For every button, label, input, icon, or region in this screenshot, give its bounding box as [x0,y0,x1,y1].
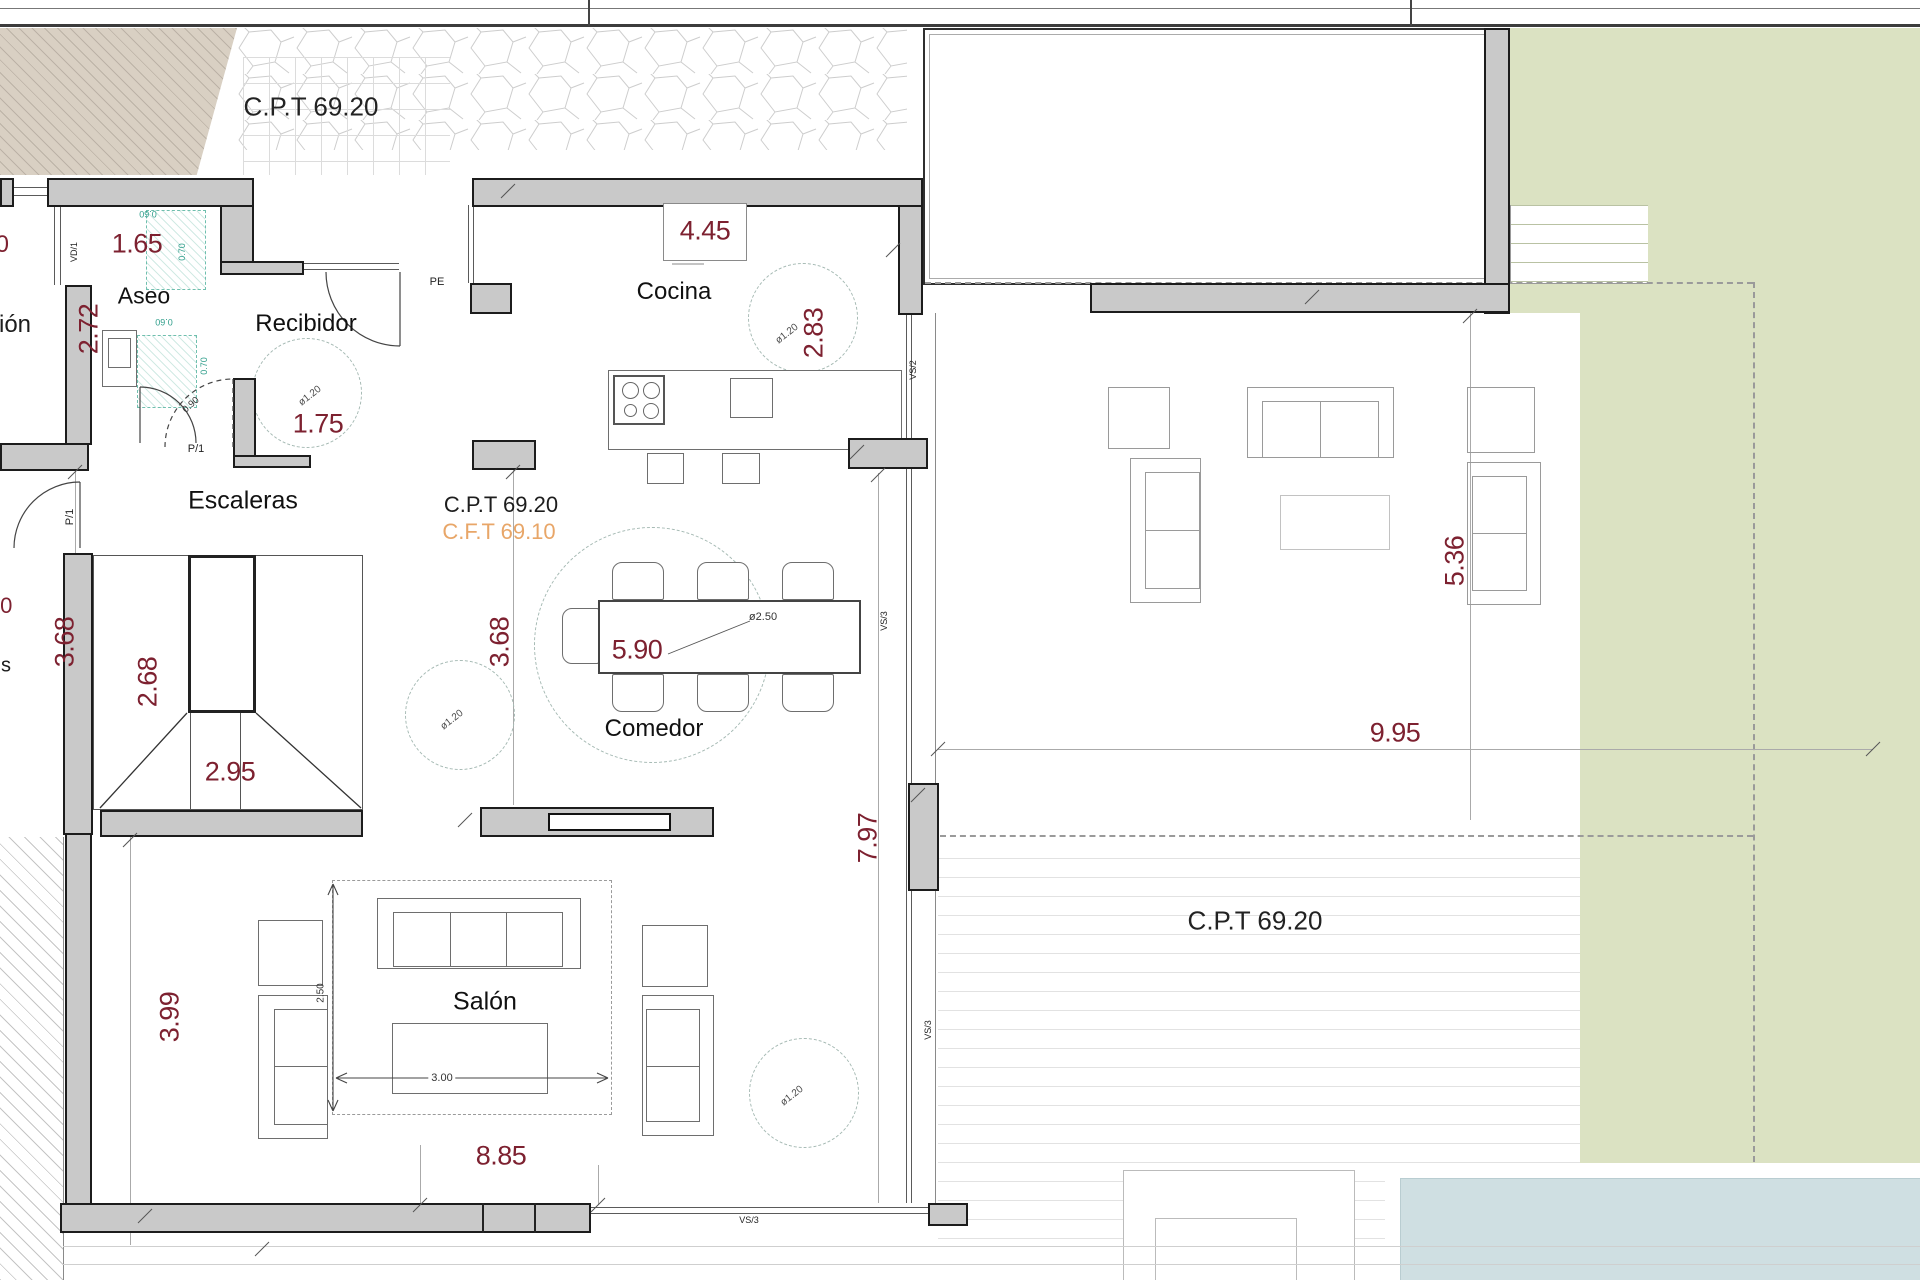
cocina-partition-line-2 [473,205,474,283]
dim-9-95: 9.95 [1370,718,1421,749]
outdoor-sofa-left-divider [1145,530,1200,531]
armchair-right [642,995,714,1136]
dim-3-68-left: 3.68 [50,617,81,668]
armchair-left-divider [274,1066,328,1067]
pe-threshold-line-2 [303,269,399,270]
dining-chair-bottom-2 [697,674,749,712]
hatch-bottom-left [0,837,64,1280]
dim-line-885-right [598,1165,599,1205]
dim-3-99: 3.99 [155,992,186,1043]
dim-5-90: 5.90 [612,635,663,666]
coffee-table [392,1023,548,1094]
sofa-cushion-line-1 [450,912,451,967]
burner-2 [643,382,660,399]
stool-2 [722,453,760,484]
burner-4 [643,403,659,419]
kitchen-sink [730,378,773,418]
dim-line-salon-left [130,837,131,1245]
annex-right-wall [1484,28,1510,314]
burner-1 [622,382,639,399]
wall-leftroom-bottom [0,443,89,471]
sideboard-niche [548,813,671,831]
top-wall-window-line-1 [14,187,47,188]
top-wall-window-line-2 [14,195,47,196]
sofa [377,898,581,969]
dining-chair-bottom-3 [782,674,834,712]
dining-chair-top-3 [782,562,834,600]
cft-label-mid: C.F.T 69.10 [442,519,555,545]
code-p1-a: P/1 [188,443,205,455]
lawn-right-column [1580,313,1920,1163]
dining-chair-bottom-1 [612,674,664,712]
terrace-edge-line [935,313,936,1205]
pier-kitchen-entry [470,283,512,314]
dashed-line-lower [940,835,1753,837]
side-table-right [642,925,708,987]
wall-pier-line-1 [482,1203,484,1233]
armchair-right-divider [646,1066,700,1067]
dim-0-70-b: 0.70 [199,357,209,375]
stove [613,375,665,425]
dim-1-75: 1.75 [293,409,344,440]
dim-3-68-hall: 3.68 [485,617,516,668]
code-vs3-c: VS/3 [739,1215,759,1225]
room-label-comedor: Comedor [605,715,704,743]
dim-1-65: 1.65 [112,229,163,260]
room-label-recibidor: Recibidor [255,310,356,338]
site-boundary-line [0,8,1920,9]
pier-southeast-corner [928,1203,968,1226]
partial-dim-zero-a: 0 [0,231,8,259]
pier-hall [472,440,536,470]
dim-8-85: 8.85 [476,1141,527,1172]
room-label-cocina: Cocina [637,278,712,306]
code-vs3-a: VS/3 [879,611,889,631]
partial-dim-zero-b: 0 [0,593,12,619]
vd1-window-line-2 [60,205,61,285]
code-vd1: VD/1 [69,242,79,262]
dim-fi-2-50: ø2.50 [749,611,777,623]
dim-line-885-left [420,1145,421,1205]
wall-salon-left [65,833,92,1206]
dim-line-995 [938,749,1873,750]
room-label-escaleras: Escaleras [188,487,298,516]
dim-5-36: 5.36 [1440,536,1471,587]
dim-0-60-b: 0.60 [155,317,173,327]
south-window-glass-2 [590,1213,928,1214]
vd1-window-line-1 [54,205,55,285]
annex-bottom-wall [1090,283,1510,313]
outdoor-sofa-top [1247,387,1394,458]
wall-salon-bottom [60,1203,591,1233]
code-vs3-b: VS/3 [923,1020,933,1040]
side-table-left [258,920,323,986]
wall-pier-line-2 [534,1203,536,1233]
dim-2-83: 2.83 [799,308,830,359]
boundary-tick-right [1410,0,1412,26]
cpt-label-mid: C.P.T 69.20 [444,492,558,518]
pier-east-mid [848,438,928,469]
dining-chair-head [562,608,599,664]
deck-platform-inner [1155,1218,1297,1280]
armchair-left [258,995,328,1139]
site-bottom-line-2 [63,1264,1920,1265]
burner-3 [624,404,637,417]
annex-inner-line [929,34,1504,279]
dim-2-95: 2.95 [205,757,256,788]
armchair-left-seat [274,1009,328,1125]
dim-0-60-a: 0.60 [139,209,157,219]
wall-stairs-bottom [100,810,363,837]
room-label-aseo: Aseo [118,283,170,310]
cocina-partition-line-1 [468,205,469,283]
outdoor-sofa-right [1467,462,1541,605]
south-window-glass-1 [590,1207,928,1208]
wall-stairs-left [63,553,93,835]
dim-7-97: 7.97 [853,813,884,864]
outdoor-table-2 [1467,387,1535,453]
pier-east-lower [908,783,939,891]
dim-0-70-a: 0.70 [177,243,187,261]
dim-2-68: 2.68 [133,657,164,708]
dim-2-50: 2.50 [316,983,327,1002]
code-vs2: VS/2 [908,360,918,380]
code-p1-b: P/1 [64,509,76,526]
toilet-bowl [108,338,131,368]
wall-cocina-right-upper [898,205,923,315]
outdoor-sofa-top-divider [1320,401,1321,458]
room-label-salon: Salón [453,988,517,1017]
wall-aseo-top [47,178,254,207]
dining-chair-top-2 [697,562,749,600]
floor-plan-canvas: C.P.T 69.20 C.P.T 69.20 C.F.T 69.10 C.P.… [0,0,1920,1280]
outdoor-sofa-left [1130,458,1201,603]
garden-steps [1510,205,1648,284]
sofa-cushion-line-2 [506,912,507,967]
cpt-label-top: C.P.T 69.20 [244,92,379,123]
stairs-void [188,555,256,713]
dashed-line-vertical [1753,282,1755,1162]
wall-escaleras-top-stub [233,455,311,468]
code-pe: PE [430,276,445,288]
dim-2-72: 2.72 [74,304,105,355]
pe-threshold-line-1 [303,263,399,264]
site-bottom-line-1 [63,1246,1920,1247]
wall-top-left-end [0,178,14,207]
outdoor-table-1 [1108,387,1170,449]
site-wall-line [0,24,1920,27]
cpt-label-right: C.P.T 69.20 [1188,906,1323,937]
beige-pavement-zone [0,28,237,175]
outdoor-sofa-right-divider [1472,533,1527,534]
stool-1 [647,453,684,484]
sofa-seat [393,912,563,967]
dining-chair-top-1 [612,562,664,600]
aseo-fixture-lower [137,335,197,408]
outdoor-low-table [1280,495,1390,550]
dim-3-00: 3.00 [428,1072,455,1084]
wall-aseo-right-stub [220,261,304,275]
partial-label-s: s [1,655,11,678]
dim-4-45: 4.45 [680,216,731,247]
partial-label-ion: ión [0,311,31,339]
boundary-tick-left [588,0,590,26]
